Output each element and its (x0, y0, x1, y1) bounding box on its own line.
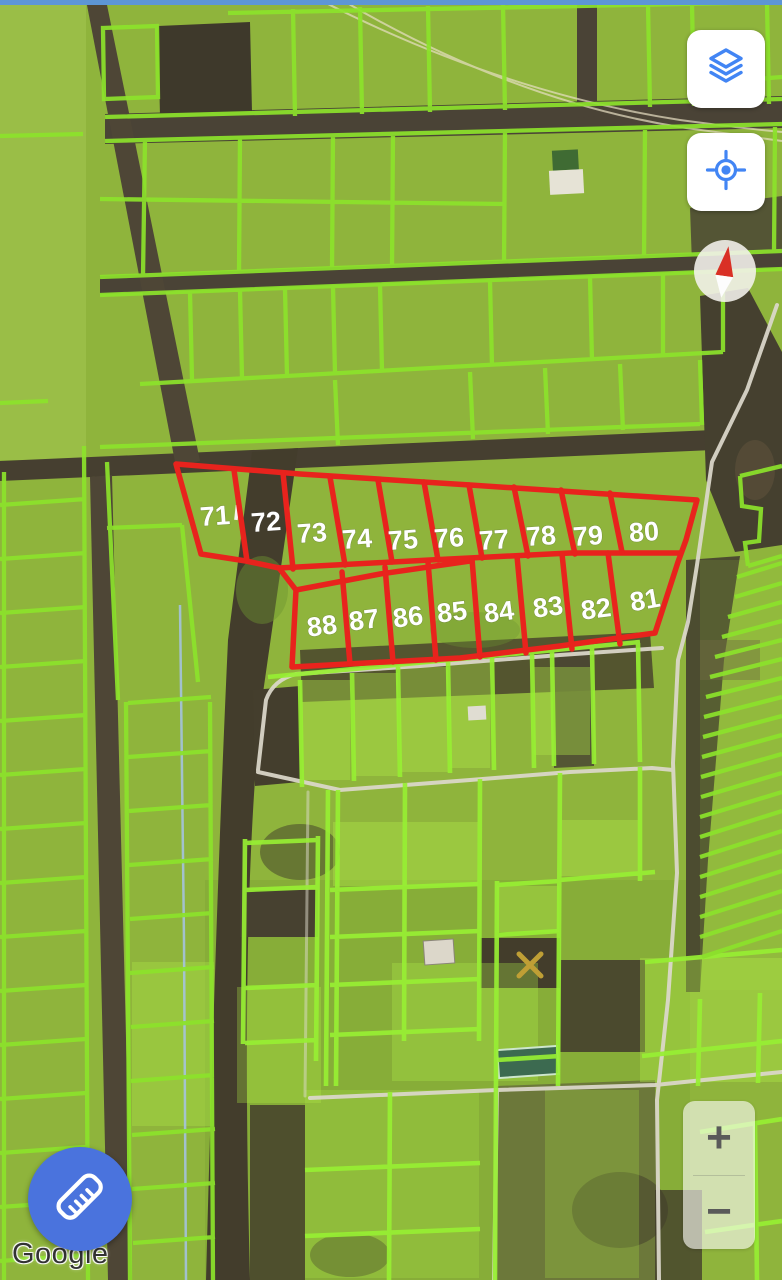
red-parcel-label-83: 83 (531, 590, 564, 623)
red-parcel-label-77: 77 (478, 524, 510, 556)
red-parcel-label-87: 87 (347, 603, 380, 636)
compass-button[interactable] (694, 240, 756, 302)
red-parcel-label-80: 80 (628, 516, 660, 548)
red-parcel-label-79: 79 (572, 520, 604, 552)
red-parcel-label-85: 85 (435, 595, 468, 628)
red-parcel-label-81: 81 (628, 583, 663, 618)
red-parcel-label-76: 76 (433, 522, 465, 554)
zoom-out-button[interactable]: − (683, 1176, 755, 1250)
ruler-icon (51, 1168, 109, 1231)
red-parcel-label-73: 73 (296, 517, 328, 549)
zoom-control: + − (683, 1101, 755, 1249)
red-parcel-label-74: 74 (341, 523, 373, 555)
red-parcel-label-78: 78 (525, 520, 557, 552)
red-parcel-label-84: 84 (482, 595, 515, 628)
layers-icon (703, 45, 749, 94)
tennis-court (497, 1046, 559, 1078)
red-parcel-label-86: 86 (391, 600, 424, 633)
my-location-button[interactable] (687, 133, 765, 211)
red-parcel-label-88: 88 (305, 609, 338, 642)
red-parcel-label-72: 72 (250, 506, 282, 538)
map-canvas[interactable]: 717273747576777879808887868584838281 (0, 0, 782, 1280)
zoom-in-button[interactable]: + (683, 1101, 755, 1175)
measure-button[interactable] (28, 1147, 132, 1251)
top-boundary-line (0, 0, 782, 5)
red-parcel-label-82: 82 (579, 592, 612, 625)
map-app: 717273747576777879808887868584838281 (0, 0, 782, 1280)
layers-button[interactable] (687, 30, 765, 108)
red-parcel-label-75: 75 (387, 524, 419, 556)
my-location-icon (703, 147, 749, 198)
compass-needle-icon (694, 289, 756, 306)
water-line (180, 605, 186, 1280)
red-parcel-label-71: 71 (199, 500, 231, 532)
